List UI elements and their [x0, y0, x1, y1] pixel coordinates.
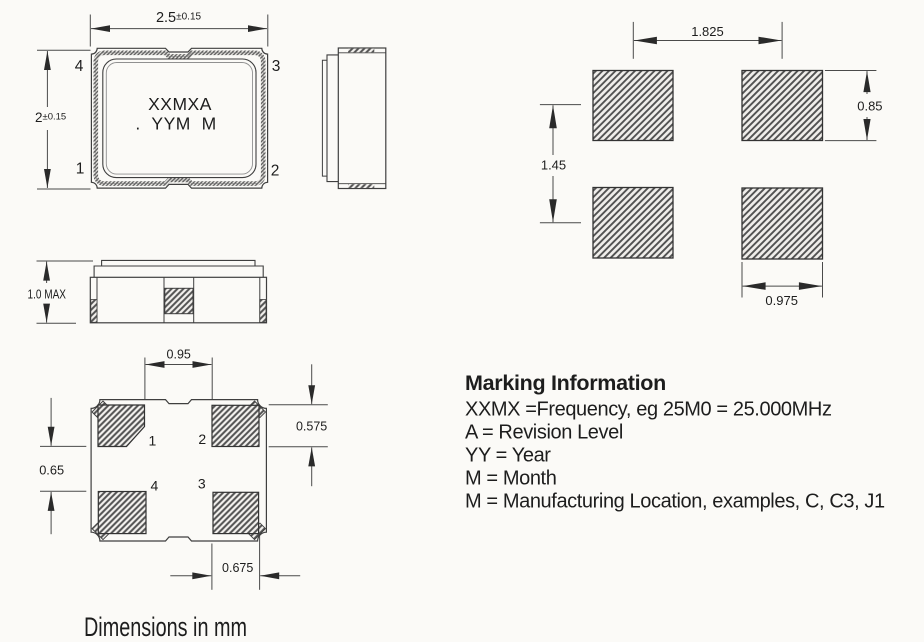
svg-text:1: 1: [149, 433, 157, 449]
svg-text:XXMX =Frequency, eg 25M0 = 25.: XXMX =Frequency, eg 25M0 = 25.000MHz: [465, 398, 832, 420]
svg-text:Marking Information: Marking Information: [465, 371, 666, 395]
svg-text:YY = Year: YY = Year: [465, 445, 551, 467]
svg-text:1.825: 1.825: [691, 24, 724, 39]
svg-text:Dimensions in mm: Dimensions in mm: [84, 612, 247, 642]
svg-text:2±0.15: 2±0.15: [35, 110, 66, 125]
svg-text:. YYM M: . YYM M: [135, 114, 216, 134]
svg-text:0.675: 0.675: [222, 561, 253, 575]
svg-text:M = Manufacturing Location, ex: M = Manufacturing Location, examples, C,…: [465, 491, 885, 513]
svg-text:2.5±0.15: 2.5±0.15: [156, 10, 202, 26]
svg-text:XXMXA: XXMXA: [148, 94, 212, 114]
svg-text:1.0 MAX: 1.0 MAX: [28, 287, 67, 301]
svg-text:0.85: 0.85: [857, 98, 882, 113]
svg-text:M = Month: M = Month: [465, 468, 556, 490]
svg-text:2: 2: [198, 431, 206, 447]
svg-text:0.575: 0.575: [296, 420, 327, 434]
svg-text:0.975: 0.975: [765, 293, 798, 308]
svg-text:3: 3: [272, 58, 281, 75]
svg-text:0.95: 0.95: [167, 348, 191, 362]
svg-text:0.65: 0.65: [39, 463, 64, 478]
svg-text:1: 1: [76, 161, 85, 178]
svg-text:4: 4: [151, 477, 159, 493]
svg-text:1.45: 1.45: [541, 157, 566, 172]
svg-text:A = Revision Level: A = Revision Level: [465, 422, 623, 444]
svg-text:2: 2: [271, 163, 280, 180]
svg-text:4: 4: [75, 58, 84, 75]
svg-text:3: 3: [198, 476, 206, 492]
